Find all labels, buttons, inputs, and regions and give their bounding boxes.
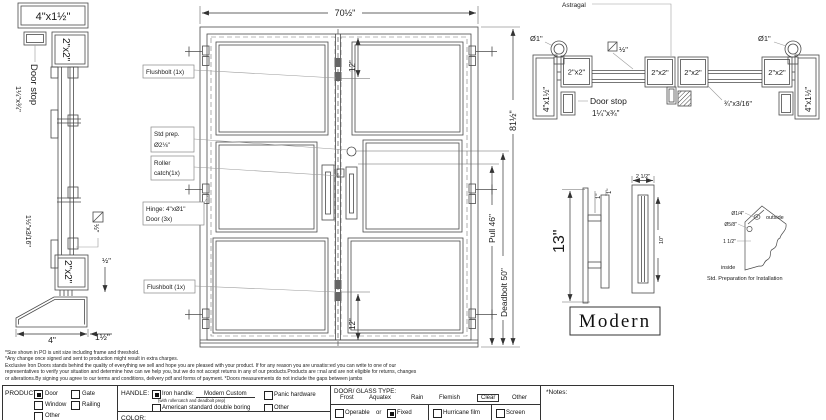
pull-handle-right	[346, 167, 357, 219]
door-stop-right	[779, 92, 793, 115]
color-cell: COLOR:	[117, 411, 331, 420]
stile-1-label: 2"x2"	[568, 68, 586, 77]
handle-height-label: 13"	[551, 230, 568, 253]
elevation-label-boxes	[143, 65, 204, 293]
glass-col-divider-2	[491, 404, 492, 420]
notes-cell[interactable]: *Notes:	[540, 385, 674, 420]
handle-grip-label: 10"	[659, 236, 665, 244]
product-option-window: Window	[45, 402, 66, 408]
pull-handle-left	[322, 165, 334, 220]
threshold-width-label: 4"	[48, 335, 56, 345]
flushbolt-mark-top	[335, 58, 342, 67]
glass-type-clear-selected[interactable]: Clear	[477, 394, 499, 402]
prep-caption-label: Std. Preparation for Installation	[707, 276, 783, 282]
iron-handle-value: Modern Custom	[196, 391, 255, 398]
plan-door-stop-label: Door stop	[590, 96, 627, 106]
american-boring-label: American standard double boring	[162, 405, 250, 411]
checkbox-door[interactable]	[34, 390, 43, 399]
flushbolt-mark-bottom	[335, 280, 342, 289]
operable-label: Operable	[345, 410, 370, 416]
prep-inside-label: inside	[721, 265, 735, 271]
handle-label: HANDLE:	[121, 390, 149, 397]
elevation-dimensions	[200, 6, 520, 347]
color-label: COLOR:	[121, 415, 146, 420]
flushbolt-bottom-label: Flushbolt (1x)	[147, 284, 185, 291]
glass-type-aquatex[interactable]: Aquatex	[369, 395, 391, 401]
prep-offset-label: 1 1/2"	[723, 239, 736, 245]
screen-label: Screen	[506, 410, 525, 416]
panic-hardware-label: Panic hardware	[274, 392, 316, 398]
door-stop-left	[561, 92, 575, 115]
hinge-label-2: Door (3x)	[146, 216, 172, 223]
prep-outside-label: outside	[766, 215, 784, 221]
plan-glazing-bar-label: ¾"x3/16"	[724, 101, 752, 108]
glass-type-frost[interactable]: Frost	[340, 395, 354, 401]
glass-type-label: DOOR/ GLASS TYPE:	[334, 388, 396, 395]
hinge-pin-right	[785, 41, 801, 57]
rail-top-label: 2"x2"	[60, 38, 71, 62]
astragal-label: Astragal	[562, 2, 586, 9]
astragal-bar	[667, 87, 676, 104]
std-prep-label-1: Std prep.	[154, 131, 180, 138]
glass-type-other[interactable]: Other	[512, 395, 527, 401]
gap-half-label: ½"	[102, 256, 111, 265]
technical-drawing-sheet: 4"x1½" Door stop 1¼"x¾" 2"x2" 2"x2" 1½"x…	[0, 0, 826, 420]
roller-catch-label-2: catch(1x)	[154, 170, 180, 177]
drawing-canvas: 4"x1½" Door stop 1¼"x¾" 2"x2" 2"x2" 1½"x…	[0, 0, 826, 352]
stile-2-label: 2"x2"	[651, 68, 669, 77]
square-half-label: ½"	[92, 224, 100, 233]
door-stop-size-label: 1¼"x¾"	[14, 86, 23, 112]
glass-row-divider	[331, 404, 540, 405]
std-prep-label-2: Ø2⅛"	[154, 142, 170, 149]
notes-label: *Notes:	[546, 389, 567, 396]
fixed-label: Fixed	[397, 410, 412, 416]
pin-dia-left-label: Ø1"	[530, 34, 543, 43]
glass-col-divider-1	[428, 404, 429, 420]
plan-door-stop-size-label: 1¼"x¾"	[592, 109, 620, 118]
plan-square-half-label: ½"	[619, 45, 628, 54]
prep-dia-large-label: Ø5/8"	[724, 222, 737, 228]
prep-hole-large	[747, 226, 752, 231]
glass-type-rain[interactable]: Rain	[411, 395, 423, 401]
hinge-label-1: Hinge: 4"xØ1"	[146, 206, 185, 213]
checkbox-gate[interactable]	[71, 390, 80, 399]
hinge-pin-left	[551, 41, 567, 57]
prep-dia-small-label: Ø1/4"	[731, 211, 744, 217]
glazing-bar-label: 1½"x3/16"	[24, 215, 32, 247]
product-option-railing: Railing	[82, 402, 100, 408]
product-option-other: Other	[45, 413, 60, 419]
dim-deadbolt-label: Deadbolt 50"	[499, 268, 509, 317]
iron-handle-sub: (with rollercatch and deadbolt prep)	[158, 398, 225, 403]
handle-proj-label-1: 1"	[596, 194, 602, 199]
rail-bottom-label: 2"x2"	[62, 260, 73, 284]
plan-section	[533, 41, 819, 119]
glass-type-cell: DOOR/ GLASS TYPE: Frost Aquatex Rain Fle…	[330, 385, 541, 420]
dim-pull-label: Pull 46"	[487, 214, 497, 243]
checkbox-fixed[interactable]	[387, 409, 396, 418]
door-stop-label: Door stop	[28, 64, 39, 105]
stile-4-label: 2"x2"	[768, 68, 786, 77]
disclaimer-text: *Size shown in PO is unit size including…	[5, 350, 823, 382]
product-cell: PRODUCT: Door Gate Window Railing Other	[2, 385, 118, 420]
checkbox-hurricane-film[interactable]	[433, 409, 442, 418]
astragal-hatch	[678, 91, 691, 106]
checkbox-panic-hardware[interactable]	[264, 391, 273, 400]
hurricane-film-label: Hurricane film	[443, 410, 480, 416]
dim-height-label: 81½"	[508, 110, 518, 131]
dim-glass-bottom-label: 12"	[348, 318, 357, 330]
iron-handle-label: Iron handle:	[162, 391, 194, 397]
flushbolt-top-label: Flushbolt (1x)	[146, 69, 184, 76]
jamb-header-label: 4"x1½"	[36, 11, 71, 23]
handle-width-label: 2 1/2"	[636, 174, 650, 180]
handle-other-label: Other	[274, 405, 289, 411]
handle-cell: HANDLE: Iron handle: Modern Custom (with…	[117, 385, 331, 412]
checkbox-screen[interactable]	[496, 409, 505, 418]
jamb-left-label: 4"x1½"	[542, 87, 551, 112]
threshold-height-label: 1½"	[95, 332, 110, 342]
door-elevation	[185, 27, 497, 347]
dim-width-label: 70½"	[335, 8, 356, 18]
pin-dia-right-label: Ø1"	[758, 34, 771, 43]
product-option-gate: Gate	[82, 391, 95, 397]
order-form: PRODUCT: Door Gate Window Railing Other …	[2, 385, 674, 420]
glass-type-flemish[interactable]: Flemish	[439, 395, 460, 401]
or-label: or	[376, 410, 381, 416]
jamb-right-label: 4"x1½"	[804, 87, 813, 112]
checkbox-railing[interactable]	[71, 401, 80, 410]
deadbolt-circle	[347, 147, 356, 156]
stile-3-label: 2"x2"	[684, 68, 702, 77]
product-option-door: Door	[45, 391, 58, 397]
disclaimer-line-5: or alterations.By signing you agree to o…	[5, 376, 823, 382]
handle-proj-label-2: 1"	[607, 189, 613, 194]
checkbox-operable[interactable]	[335, 409, 344, 418]
checkbox-window[interactable]	[34, 401, 43, 410]
dim-glass-top-label: 12"	[348, 60, 357, 72]
checkbox-product-other[interactable]	[34, 412, 43, 420]
style-name-label: Modern	[579, 311, 651, 332]
roller-catch-label-1: Roller	[154, 160, 170, 167]
plan-leaders	[545, 4, 786, 101]
